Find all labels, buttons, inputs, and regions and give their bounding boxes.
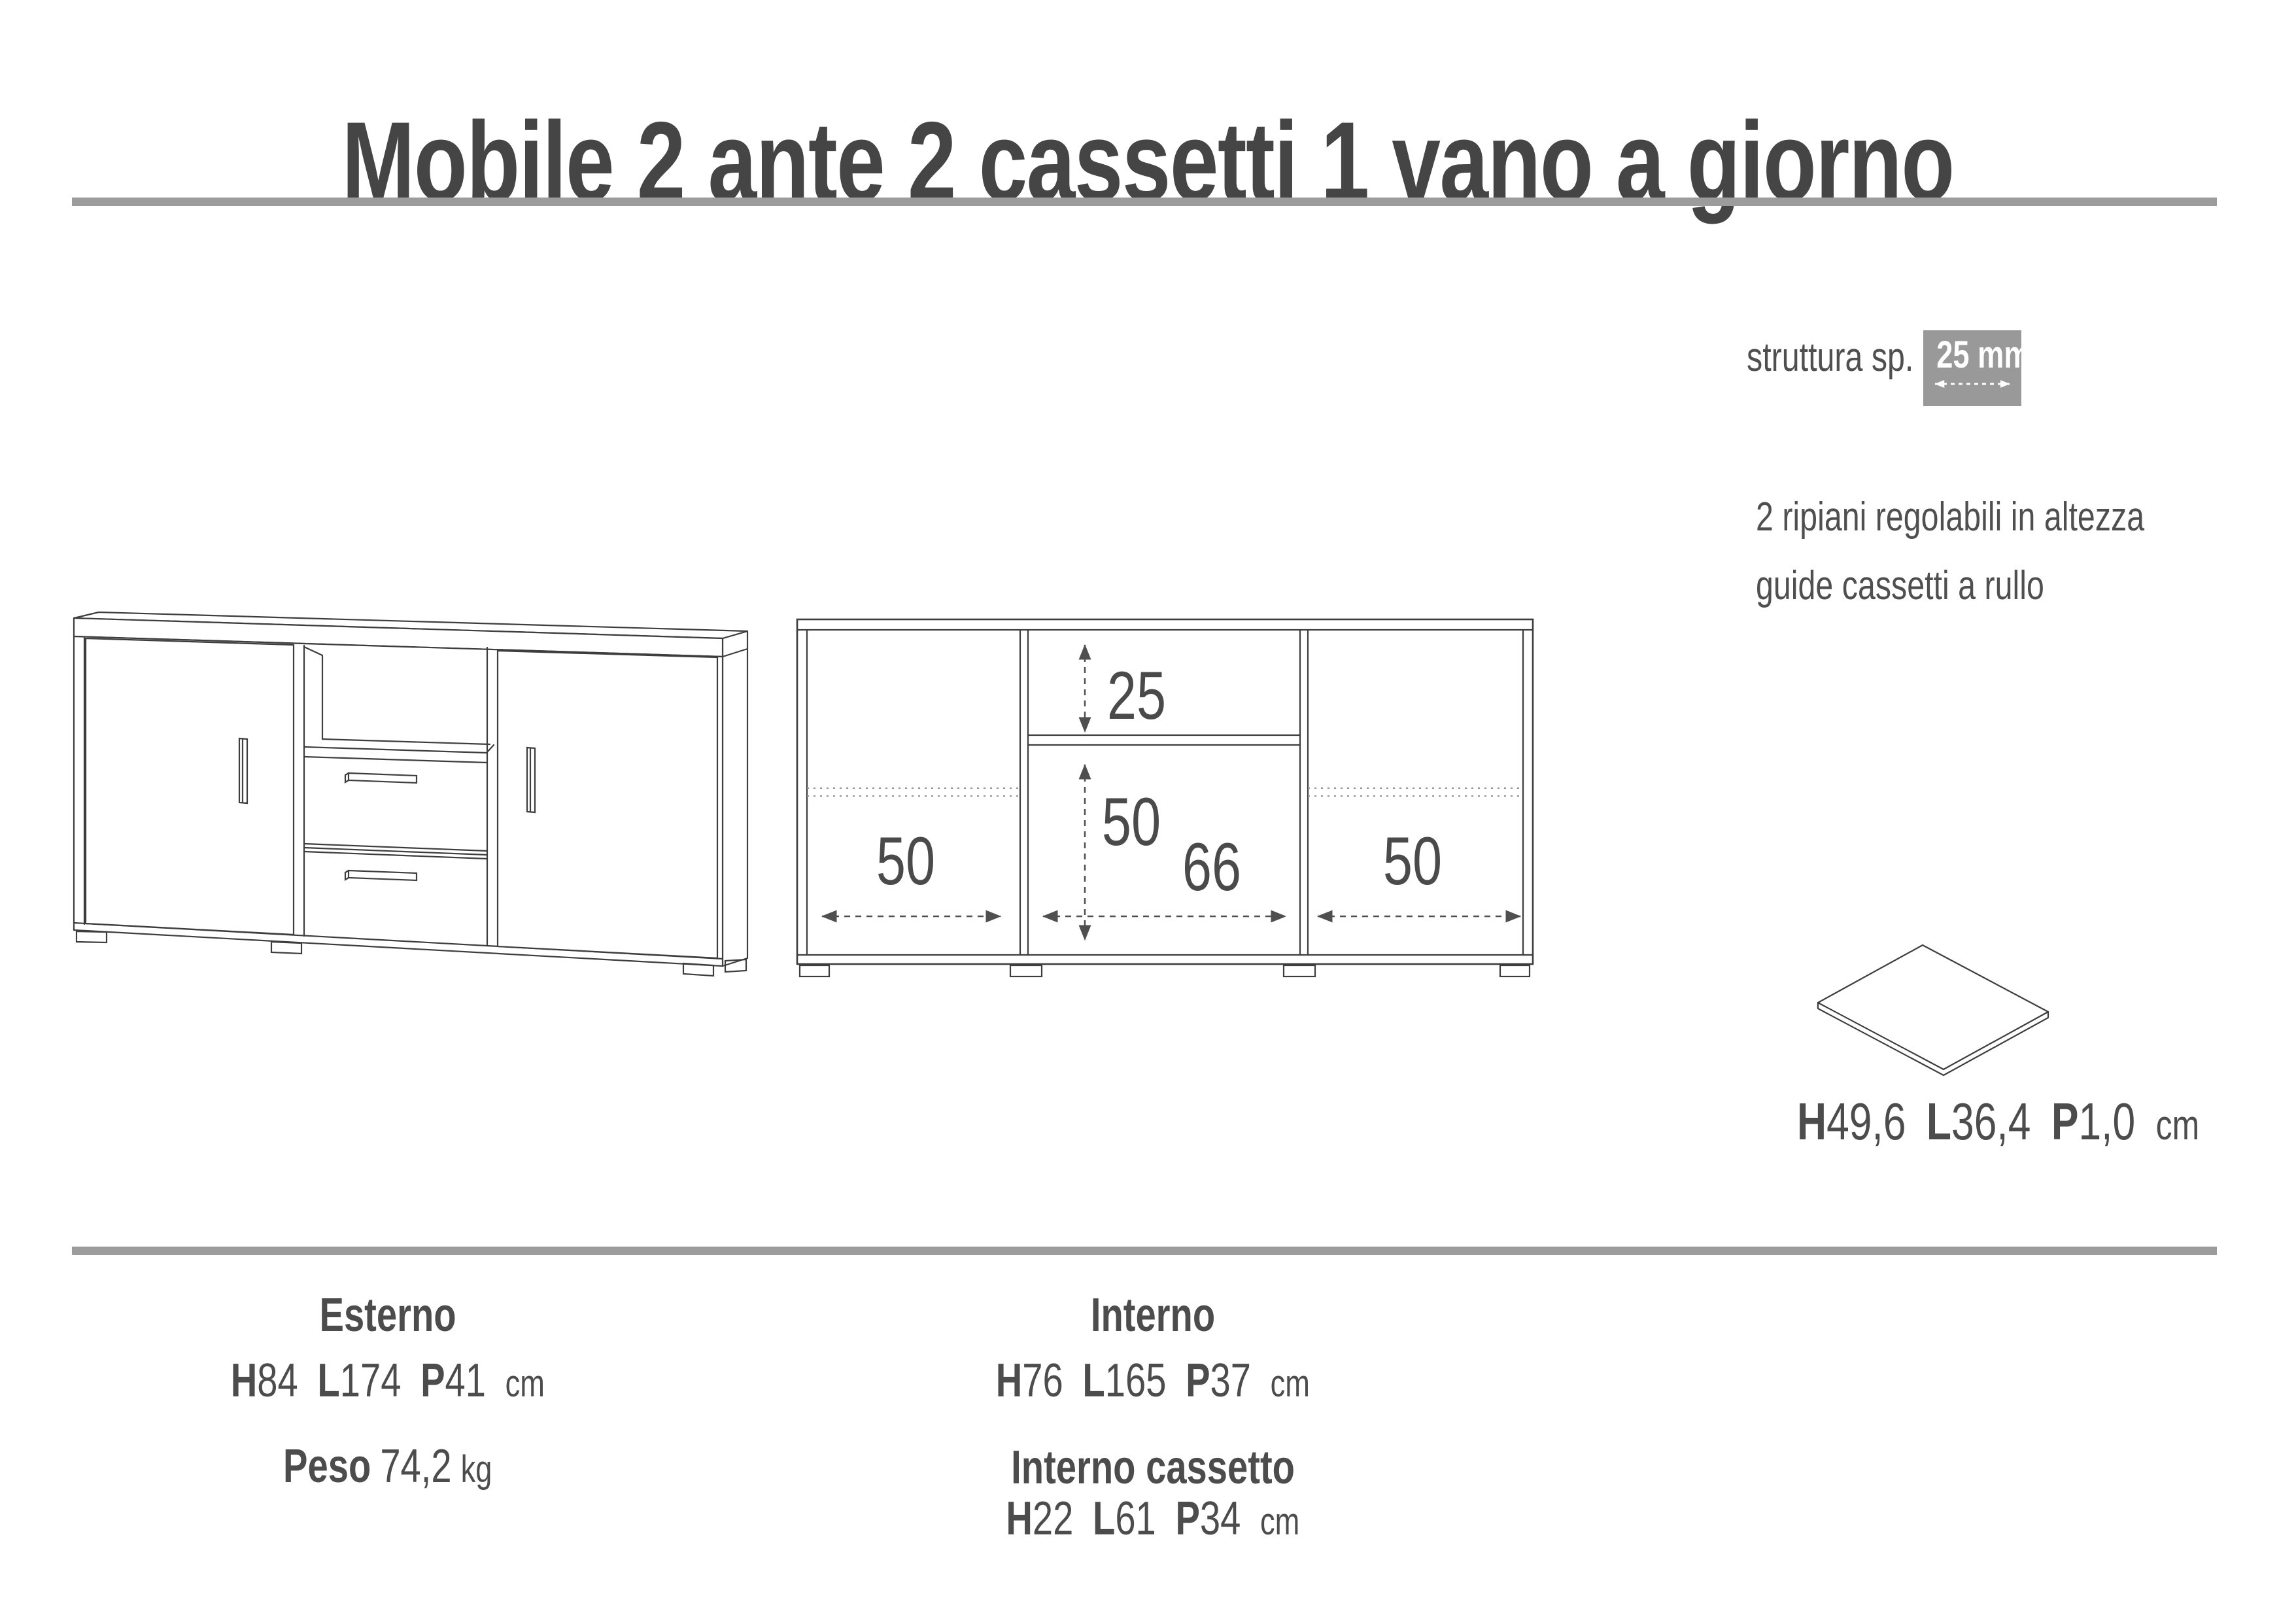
feature-note-guides: guide cassetti a rullo: [1756, 551, 2254, 620]
middle-shelf-line: [1028, 735, 1300, 745]
page-title-text: Mobile 2 ante 2 cassetti 1 vano a giorno: [342, 97, 1954, 226]
right-width-value: 50: [1383, 823, 1442, 899]
interno-cassetto-dimensions: H22 L61 P34 cm: [891, 1493, 1414, 1547]
interno-dimensions: H76 L165 P37 cm: [891, 1355, 1414, 1409]
feature-note-shelves: 2 ripiani regolabili in altezza: [1756, 483, 2254, 551]
structure-thickness-label: struttura sp.: [1521, 335, 1913, 381]
shelf-panel-top-face: [1818, 945, 2048, 1069]
center-width-value: 66: [1182, 829, 1241, 905]
esterno-title: Esterno: [126, 1290, 649, 1341]
cabinet-perspective-drawing: [69, 612, 781, 991]
spec-block-interno: Interno H76 L165 P37 cm Interno cassetto…: [891, 1290, 1414, 1547]
page-title: Mobile 2 ante 2 cassetti 1 vano a giorno: [0, 97, 2296, 226]
adjustable-shelf-dotted-lines: [807, 788, 1523, 796]
front-view-feet: [800, 965, 1530, 976]
shelf-panel-dimensions: H49,6 L36,4 P1,0 cm: [1797, 1094, 2296, 1153]
interno-cassetto-title: Interno cassetto: [891, 1442, 1414, 1493]
cabinet-side-panel: [723, 631, 747, 966]
cabinet-front-view-drawing: 25 50 50 66 50: [795, 618, 1540, 991]
left-width-value: 50: [876, 823, 935, 899]
left-door: [86, 638, 294, 935]
structure-thickness-badge: 25 mm: [1923, 330, 2021, 406]
divider-line-bottom: [72, 1247, 2217, 1255]
width-arrow-icon: [1928, 376, 2016, 392]
shelf-panel-drawing: [1805, 935, 2060, 1086]
cabinet-foot: [271, 942, 301, 954]
spec-block-esterno: Esterno H84 L174 P41 cm Peso74,2kg: [126, 1290, 649, 1495]
spec-sheet-page: Mobile 2 ante 2 cassetti 1 vano a giorno…: [0, 0, 2296, 1624]
divider-line-top: [72, 198, 2217, 206]
structure-thickness-value: 25 mm: [1923, 334, 2021, 376]
vano-height-value: 25: [1107, 657, 1166, 733]
inner-height-value: 50: [1102, 784, 1161, 859]
interno-title: Interno: [891, 1290, 1414, 1341]
esterno-dimensions: H84 L174 P41 cm: [126, 1355, 649, 1409]
feature-notes: 2 ripiani regolabili in altezza guide ca…: [1756, 483, 2254, 620]
cabinet-foot: [77, 931, 107, 942]
esterno-weight: Peso74,2kg: [126, 1441, 649, 1495]
